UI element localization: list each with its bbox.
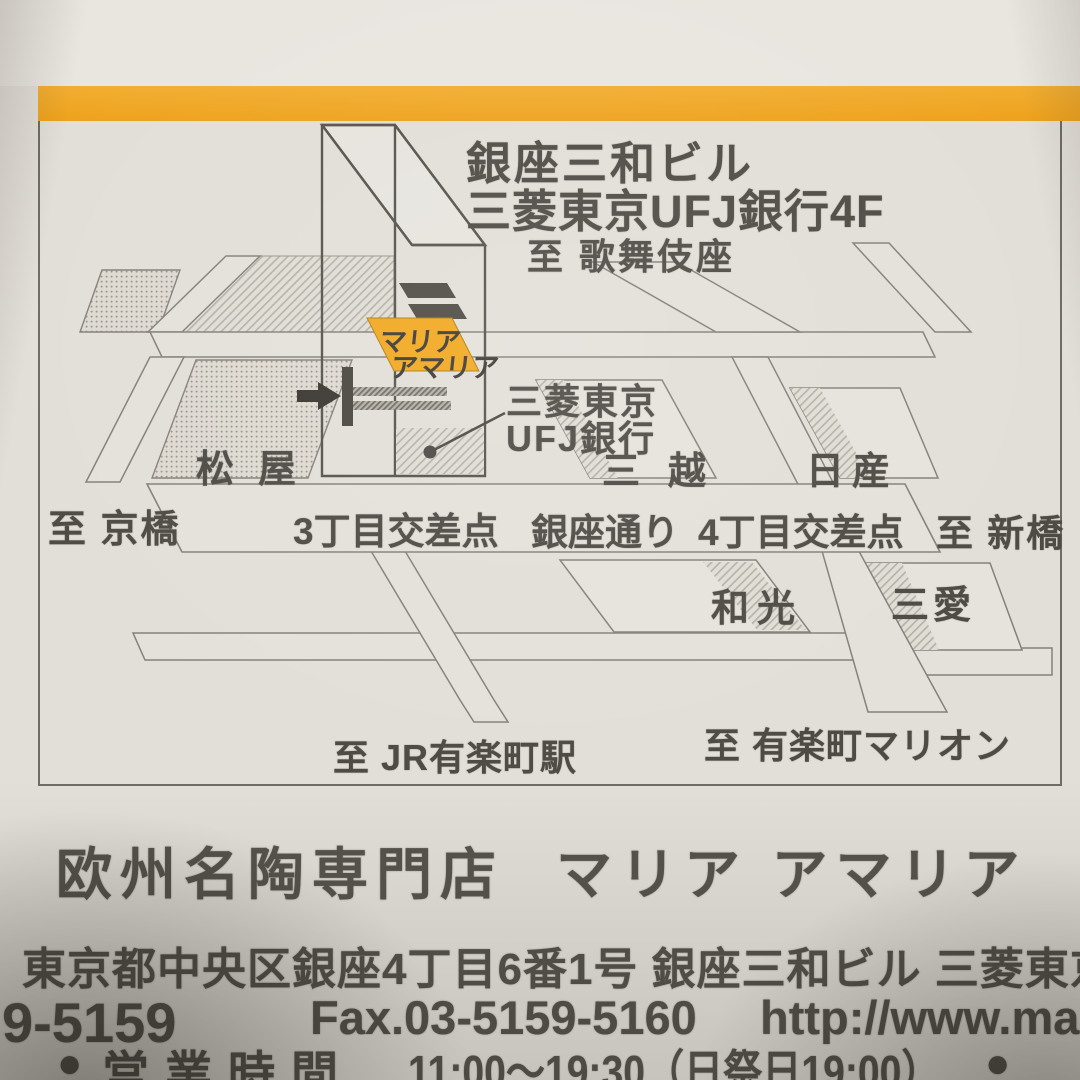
building-window-band-2 xyxy=(408,304,467,319)
store-name-line: 欧州名陶専門店 マリア アマリア xyxy=(56,830,1028,911)
building-top-face xyxy=(322,125,485,245)
bullet-icon: ● xyxy=(985,1039,1010,1080)
building-door xyxy=(342,367,353,426)
direction-kabukiza: 至 歌舞伎座 xyxy=(527,228,735,280)
direction-kyobashi: 至 京橋 xyxy=(48,498,181,553)
store-category: 欧州名陶専門店 xyxy=(56,830,504,911)
building-entrance-band-1 xyxy=(343,387,447,396)
direction-jr-yurakucho: 至 JR有楽町駅 xyxy=(333,729,577,781)
store-name: マリア アマリア xyxy=(556,830,1028,911)
landmark-sanai: 三愛 xyxy=(891,574,975,629)
business-card-photo: 銀座三和ビル 三菱東京UFJ銀行4F 至 歌舞伎座 マリア アマリア 三菱東京 … xyxy=(0,0,1080,1080)
bullet-icon: ● xyxy=(57,1039,82,1080)
building-lower-floor-shade xyxy=(396,428,484,474)
direction-yurakucho-marion: 至 有楽町マリオン xyxy=(704,717,1011,769)
direction-shimbashi: 至 新橋 xyxy=(936,503,1065,557)
road-yonchome-crossing: 4丁目交差点 xyxy=(698,502,904,556)
shop-sign-line2: アマリア xyxy=(389,346,501,385)
hours-value: 11:00〜19:30（日祭日19:00） xyxy=(408,1036,940,1080)
landmark-matsuya: 松屋 xyxy=(196,438,320,493)
landmark-nissan: 日産 xyxy=(806,440,898,495)
hours-label: 営業時間 xyxy=(102,1035,354,1080)
building-window-band-1 xyxy=(399,283,456,298)
address-line: 東京都中央区銀座4丁目6番1号 銀座三和ビル 三菱東京 xyxy=(22,933,1080,997)
landmark-mitsukoshi: 三越 xyxy=(602,440,734,495)
landmark-wako: 和光 xyxy=(711,577,803,632)
road-ginza-dori: 銀座通り xyxy=(531,502,679,556)
back-street xyxy=(150,332,935,357)
street-northeast-branch xyxy=(853,243,971,332)
location-dot-icon xyxy=(424,446,437,459)
building-entrance-band-2 xyxy=(349,401,451,410)
road-sanchome-crossing: 3丁目交差点 xyxy=(293,501,499,555)
narrow-street-left xyxy=(133,633,862,660)
